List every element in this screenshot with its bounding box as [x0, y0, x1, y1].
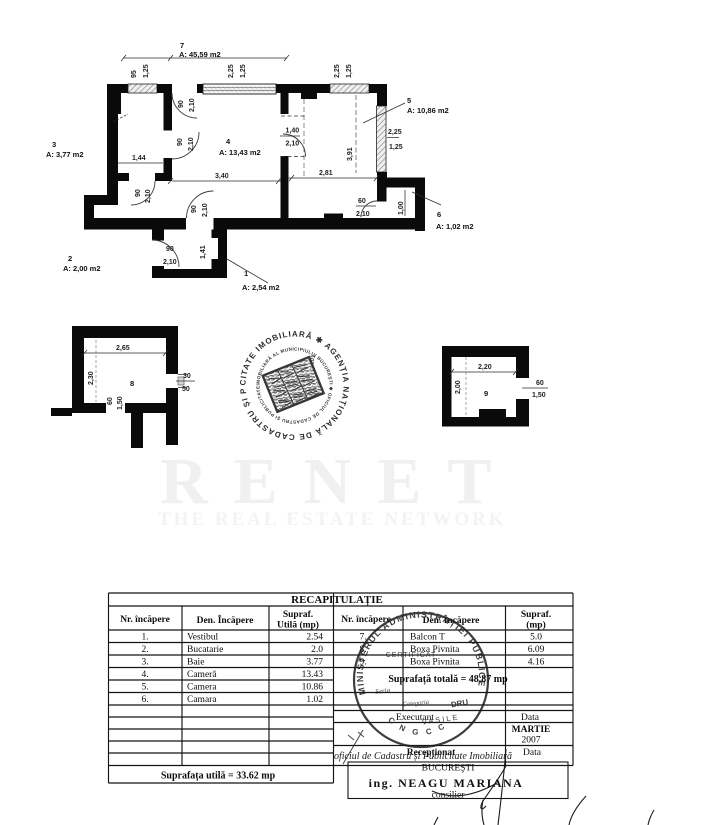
svg-text:A: 3,77 m2: A: 3,77 m2 — [46, 150, 84, 159]
svg-text:1,25: 1,25 — [143, 64, 150, 78]
svg-text:90: 90 — [177, 138, 184, 146]
svg-text:2,10: 2,10 — [145, 189, 152, 203]
svg-text:2,25: 2,25 — [228, 64, 235, 78]
svg-text:RENET: RENET — [160, 445, 517, 518]
svg-text:2,25: 2,25 — [388, 129, 402, 136]
svg-text:RECAPITULAȚIE: RECAPITULAȚIE — [291, 594, 383, 606]
svg-text:90: 90 — [166, 246, 174, 253]
svg-text:2,30: 2,30 — [88, 371, 95, 385]
svg-text:Baie: Baie — [187, 658, 204, 668]
svg-text:Vestibul: Vestibul — [187, 633, 219, 643]
svg-text:2: 2 — [68, 254, 72, 263]
svg-text:1,50: 1,50 — [532, 392, 546, 399]
svg-text:Suprafața utilă = 33.62 mp: Suprafața utilă = 33.62 mp — [161, 771, 276, 782]
svg-text:MARTIE: MARTIE — [512, 725, 551, 735]
svg-text:30: 30 — [183, 373, 191, 380]
svg-text:A: 2,54 m2: A: 2,54 m2 — [242, 283, 280, 292]
svg-text:6.: 6. — [141, 695, 148, 705]
svg-text:6.09: 6.09 — [528, 645, 545, 655]
svg-text:Boxa Pivnita: Boxa Pivnita — [410, 658, 460, 668]
svg-text:90: 90 — [135, 189, 142, 197]
svg-text:BUCUREŞTI: BUCUREŞTI — [422, 764, 475, 774]
svg-text:3,91: 3,91 — [347, 147, 354, 161]
svg-text:1,44: 1,44 — [132, 155, 146, 162]
svg-text:Supraf.: Supraf. — [283, 610, 313, 620]
svg-text:1,41: 1,41 — [200, 245, 207, 259]
svg-text:2.0: 2.0 — [311, 645, 323, 655]
svg-text:2,25: 2,25 — [334, 64, 341, 78]
svg-text:A: 13,43 m2: A: 13,43 m2 — [219, 148, 261, 157]
svg-text:Utilă (mp): Utilă (mp) — [277, 620, 319, 631]
svg-text:Data: Data — [521, 713, 540, 723]
svg-text:Camara: Camara — [187, 695, 217, 705]
svg-text:2007: 2007 — [522, 736, 541, 746]
svg-text:90: 90 — [191, 205, 198, 213]
svg-text:2,20: 2,20 — [478, 364, 492, 371]
svg-text:5.: 5. — [141, 683, 148, 693]
svg-text:Supraf.: Supraf. — [521, 610, 551, 620]
svg-text:90: 90 — [178, 100, 185, 108]
svg-text:A: 1,02 m2: A: 1,02 m2 — [436, 222, 474, 231]
svg-text:13.43: 13.43 — [302, 670, 324, 680]
svg-text:1.02: 1.02 — [306, 695, 323, 705]
svg-text:60: 60 — [107, 397, 114, 405]
svg-text:5.0: 5.0 — [530, 633, 542, 643]
svg-text:Cameră: Cameră — [187, 670, 217, 680]
svg-text:(mp): (mp) — [526, 620, 546, 631]
svg-text:CERTIFICAT: CERTIFICAT — [386, 652, 437, 659]
svg-text:A: 45,59 m2: A: 45,59 m2 — [179, 50, 221, 59]
svg-text:1,25: 1,25 — [389, 144, 403, 151]
svg-text:1,50: 1,50 — [117, 396, 124, 410]
svg-text:2,10: 2,10 — [188, 137, 195, 151]
svg-text:2.: 2. — [141, 645, 148, 655]
svg-text:ing. NEAGU MARIANA: ing. NEAGU MARIANA — [369, 776, 524, 790]
svg-text:2,10: 2,10 — [202, 203, 209, 217]
svg-text:3.: 3. — [141, 658, 148, 668]
svg-text:2,65: 2,65 — [116, 345, 130, 352]
svg-text:A: 10,86 m2: A: 10,86 m2 — [407, 106, 449, 115]
svg-text:2,81: 2,81 — [319, 170, 333, 177]
svg-text:4.: 4. — [141, 670, 148, 680]
svg-text:oficiul de Cadastru și Publici: oficiul de Cadastru și Publicitate Imobi… — [334, 751, 512, 762]
svg-text:9: 9 — [484, 389, 488, 398]
svg-text:4.16: 4.16 — [528, 658, 545, 668]
svg-text:THE REAL ESTATE NETWORK: THE REAL ESTATE NETWORK — [158, 509, 507, 530]
svg-text:Balcon T: Balcon T — [410, 633, 445, 643]
svg-text:3: 3 — [52, 140, 56, 149]
svg-text:2.54: 2.54 — [306, 633, 323, 643]
svg-text:2,10: 2,10 — [163, 259, 177, 266]
svg-text:Suprafață totală = 48,87 mp: Suprafață totală = 48,87 mp — [388, 674, 508, 685]
svg-text:60: 60 — [536, 380, 544, 387]
svg-text:1.: 1. — [141, 633, 148, 643]
svg-text:1,25: 1,25 — [346, 64, 353, 78]
svg-text:Bucatarie: Bucatarie — [187, 645, 223, 655]
svg-text:2,10: 2,10 — [356, 211, 370, 218]
svg-text:95: 95 — [131, 70, 138, 78]
svg-text:60: 60 — [358, 198, 366, 205]
svg-text:Data: Data — [523, 748, 542, 758]
svg-text:Den. Încăpere: Den. Încăpere — [197, 614, 254, 626]
svg-text:1,25: 1,25 — [240, 64, 247, 78]
svg-text:7: 7 — [180, 41, 184, 50]
svg-text:10.86: 10.86 — [302, 683, 324, 693]
svg-text:8: 8 — [130, 379, 134, 388]
svg-text:3.77: 3.77 — [306, 658, 323, 668]
svg-text:2,10: 2,10 — [286, 141, 300, 148]
svg-text:A: 2,00 m2: A: 2,00 m2 — [63, 264, 101, 273]
svg-text:2,10: 2,10 — [189, 98, 196, 112]
svg-text:Nr. încăpere: Nr. încăpere — [120, 615, 170, 625]
svg-text:1,00: 1,00 — [398, 201, 405, 215]
svg-text:1,40: 1,40 — [286, 128, 300, 135]
svg-text:50: 50 — [182, 386, 190, 393]
svg-text:Camera: Camera — [187, 683, 217, 693]
svg-text:5: 5 — [407, 96, 411, 105]
svg-text:2,00: 2,00 — [455, 380, 462, 394]
svg-text:6: 6 — [437, 210, 441, 219]
svg-text:3,40: 3,40 — [215, 173, 229, 180]
